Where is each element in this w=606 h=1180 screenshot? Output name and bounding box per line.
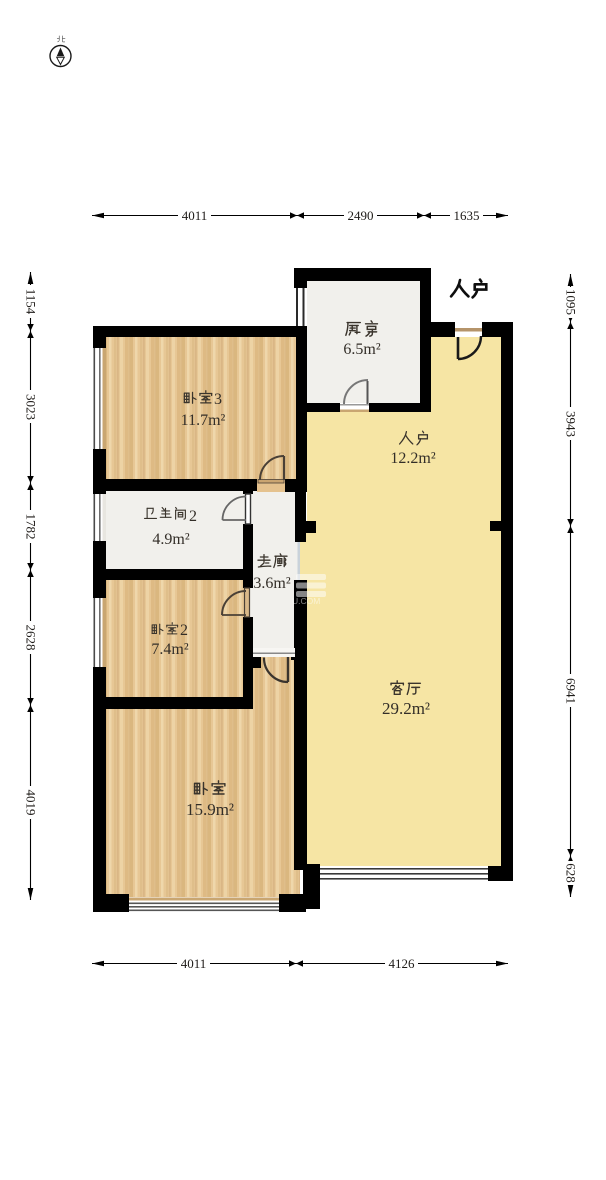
svg-text:2: 2 — [180, 622, 188, 639]
svg-text:4.9m²: 4.9m² — [152, 531, 189, 548]
svg-text:3.6m²: 3.6m² — [253, 575, 290, 592]
svg-text:U.COM: U.COM — [292, 596, 320, 606]
svg-text:2: 2 — [189, 508, 197, 525]
svg-text:29.2m²: 29.2m² — [382, 699, 430, 718]
svg-text:628: 628 — [564, 863, 579, 883]
svg-text:3943: 3943 — [564, 411, 579, 437]
svg-text:1635: 1635 — [454, 208, 480, 223]
svg-text:3: 3 — [214, 391, 222, 408]
svg-text:1782: 1782 — [24, 514, 39, 540]
svg-text:4011: 4011 — [182, 208, 208, 223]
svg-text:7.4m²: 7.4m² — [151, 641, 188, 658]
svg-text:6.5m²: 6.5m² — [343, 341, 380, 358]
svg-text:6941: 6941 — [564, 678, 579, 704]
svg-text:4019: 4019 — [24, 790, 39, 816]
svg-text:1095: 1095 — [564, 289, 579, 315]
svg-text:2628: 2628 — [24, 625, 39, 651]
svg-text:11.7m²: 11.7m² — [181, 412, 226, 429]
svg-text:3023: 3023 — [24, 394, 39, 420]
svg-text:1154: 1154 — [24, 289, 39, 315]
svg-text:12.2m²: 12.2m² — [390, 450, 435, 467]
svg-text:15.9m²: 15.9m² — [186, 800, 234, 819]
svg-text:2490: 2490 — [348, 208, 374, 223]
svg-text:4126: 4126 — [389, 956, 416, 971]
svg-text:4011: 4011 — [181, 956, 207, 971]
